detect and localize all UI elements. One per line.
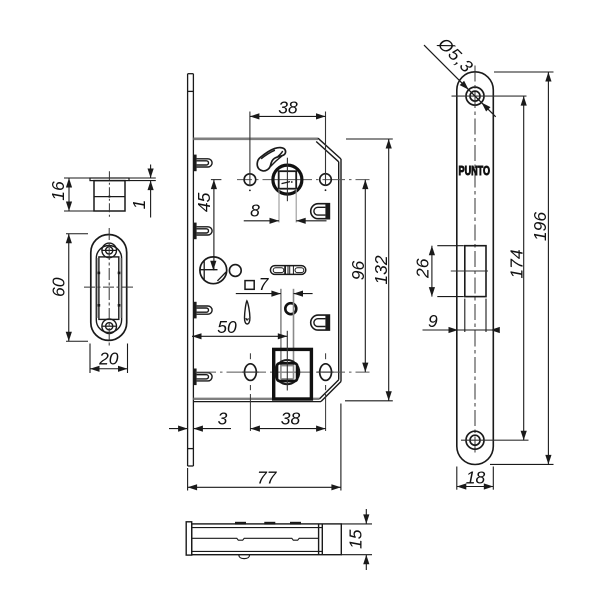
svg-text:18: 18: [466, 468, 486, 488]
svg-text:38: 38: [278, 98, 298, 118]
svg-text:1: 1: [129, 200, 149, 210]
svg-text:132: 132: [371, 255, 391, 284]
svg-text:96: 96: [348, 261, 368, 281]
svg-text:8: 8: [250, 201, 260, 221]
svg-text:PUNTO: PUNTO: [459, 164, 491, 178]
svg-text:7: 7: [259, 274, 270, 294]
svg-text:15: 15: [346, 529, 366, 549]
svg-text:20: 20: [98, 349, 119, 369]
svg-text:77: 77: [257, 468, 278, 488]
svg-text:3: 3: [218, 409, 228, 429]
svg-text:60: 60: [49, 277, 69, 297]
svg-text:174: 174: [507, 249, 527, 278]
svg-text:45: 45: [194, 192, 214, 212]
svg-text:196: 196: [530, 212, 550, 241]
svg-text:16: 16: [48, 181, 68, 201]
svg-text:50: 50: [217, 317, 237, 337]
svg-text:26: 26: [413, 258, 433, 279]
svg-text:38: 38: [281, 409, 301, 429]
svg-text:9: 9: [428, 311, 438, 331]
